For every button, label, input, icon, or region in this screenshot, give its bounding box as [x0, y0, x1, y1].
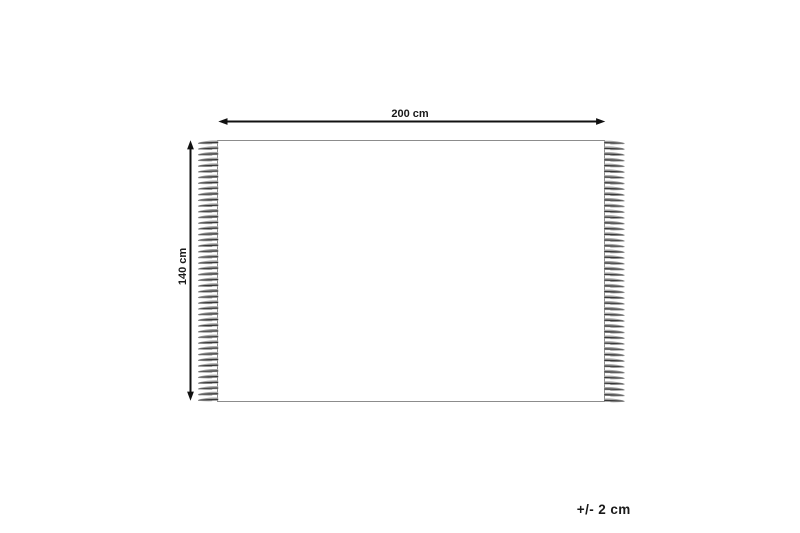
svg-text:+/- 2 cm: +/- 2 cm	[577, 502, 631, 517]
svg-text:140 cm: 140 cm	[177, 248, 189, 286]
svg-text:200 cm: 200 cm	[391, 108, 429, 120]
